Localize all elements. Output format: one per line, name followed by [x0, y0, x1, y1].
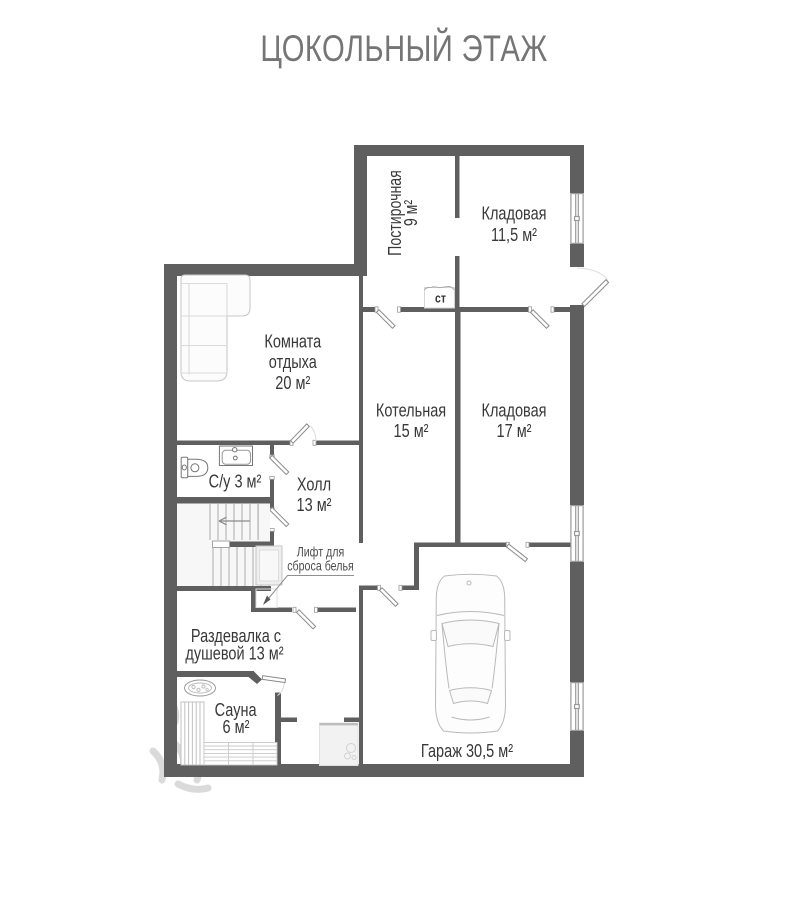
svg-text:13 м²: 13 м²: [297, 494, 332, 515]
svg-text:9 м²: 9 м²: [401, 199, 421, 226]
svg-text:сброса белья: сброса белья: [287, 558, 354, 574]
svg-text:15 м²: 15 м²: [394, 420, 429, 441]
svg-text:17 м²: 17 м²: [497, 420, 532, 441]
svg-text:душевой 13 м²: душевой 13 м²: [185, 643, 284, 664]
svg-text:6 м²: 6 м²: [223, 716, 250, 737]
svg-text:Комната: Комната: [264, 331, 322, 352]
svg-text:ЦОКОЛЬНЫЙ ЭТАЖ: ЦОКОЛЬНЫЙ ЭТАЖ: [260, 27, 547, 69]
svg-text:Кладовая: Кладовая: [481, 203, 546, 224]
svg-text:С/у 3 м²: С/у 3 м²: [209, 471, 262, 492]
svg-text:Кладовая: Кладовая: [481, 400, 546, 421]
svg-text:20 м²: 20 м²: [275, 372, 310, 393]
svg-text:ст: ст: [435, 291, 446, 305]
svg-text:Гараж 30,5 м²: Гараж 30,5 м²: [421, 740, 514, 761]
svg-text:отдыха: отдыха: [269, 352, 318, 373]
svg-text:11,5 м²: 11,5 м²: [491, 224, 537, 245]
svg-text:Котельная: Котельная: [376, 400, 446, 421]
svg-text:Холл: Холл: [297, 474, 331, 495]
